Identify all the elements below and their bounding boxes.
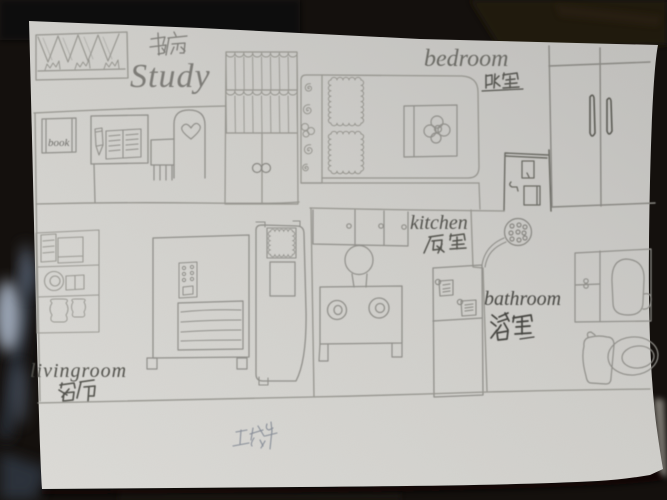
svg-text:livingroom: livingroom (30, 360, 127, 382)
svg-text:Study: Study (130, 58, 211, 95)
svg-text:bathroom: bathroom (484, 288, 561, 310)
svg-text:bedroom: bedroom (424, 46, 508, 72)
svg-text:book: book (48, 137, 71, 149)
svg-text:kitchen: kitchen (410, 212, 468, 234)
